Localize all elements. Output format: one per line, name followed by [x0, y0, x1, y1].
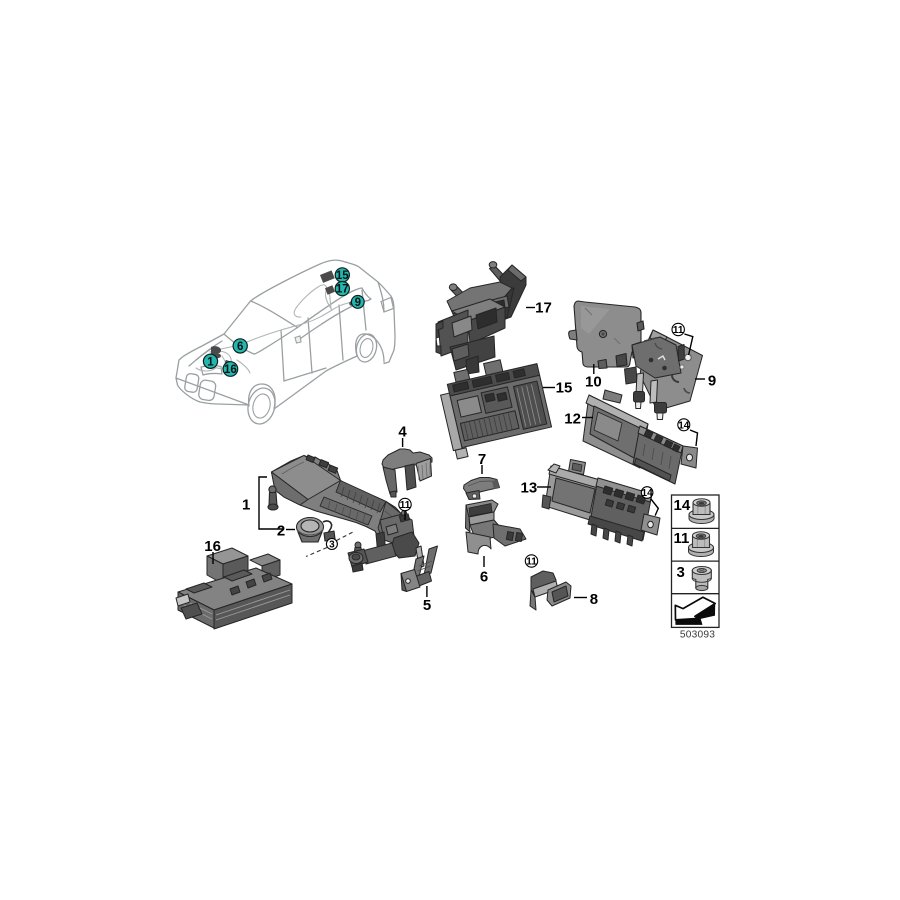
svg-text:3: 3 [329, 540, 335, 551]
svg-text:15: 15 [556, 379, 573, 396]
svg-text:16: 16 [224, 364, 237, 376]
svg-text:11: 11 [400, 500, 411, 511]
svg-text:15: 15 [336, 270, 349, 282]
svg-text:9: 9 [355, 297, 361, 309]
svg-text:6: 6 [237, 341, 243, 353]
svg-text:11: 11 [673, 325, 684, 336]
svg-text:8: 8 [590, 591, 598, 608]
svg-text:6: 6 [480, 569, 488, 586]
svg-text:9: 9 [708, 373, 716, 390]
svg-text:7: 7 [478, 451, 486, 468]
svg-text:17: 17 [535, 300, 552, 317]
svg-text:3: 3 [677, 564, 685, 581]
svg-text:11: 11 [526, 557, 537, 568]
svg-text:13: 13 [521, 480, 538, 497]
svg-text:1: 1 [242, 496, 250, 513]
svg-text:14: 14 [678, 420, 690, 431]
svg-text:17: 17 [336, 284, 349, 296]
svg-text:1: 1 [207, 356, 214, 368]
svg-text:16: 16 [204, 538, 221, 555]
svg-text:11: 11 [674, 530, 690, 547]
svg-text:14: 14 [674, 497, 691, 514]
svg-text:14: 14 [642, 488, 654, 499]
svg-text:5: 5 [423, 597, 431, 614]
svg-text:503093: 503093 [680, 630, 715, 641]
svg-text:12: 12 [564, 411, 581, 428]
svg-text:10: 10 [585, 374, 602, 391]
svg-text:4: 4 [398, 423, 407, 440]
svg-text:2: 2 [277, 523, 285, 540]
